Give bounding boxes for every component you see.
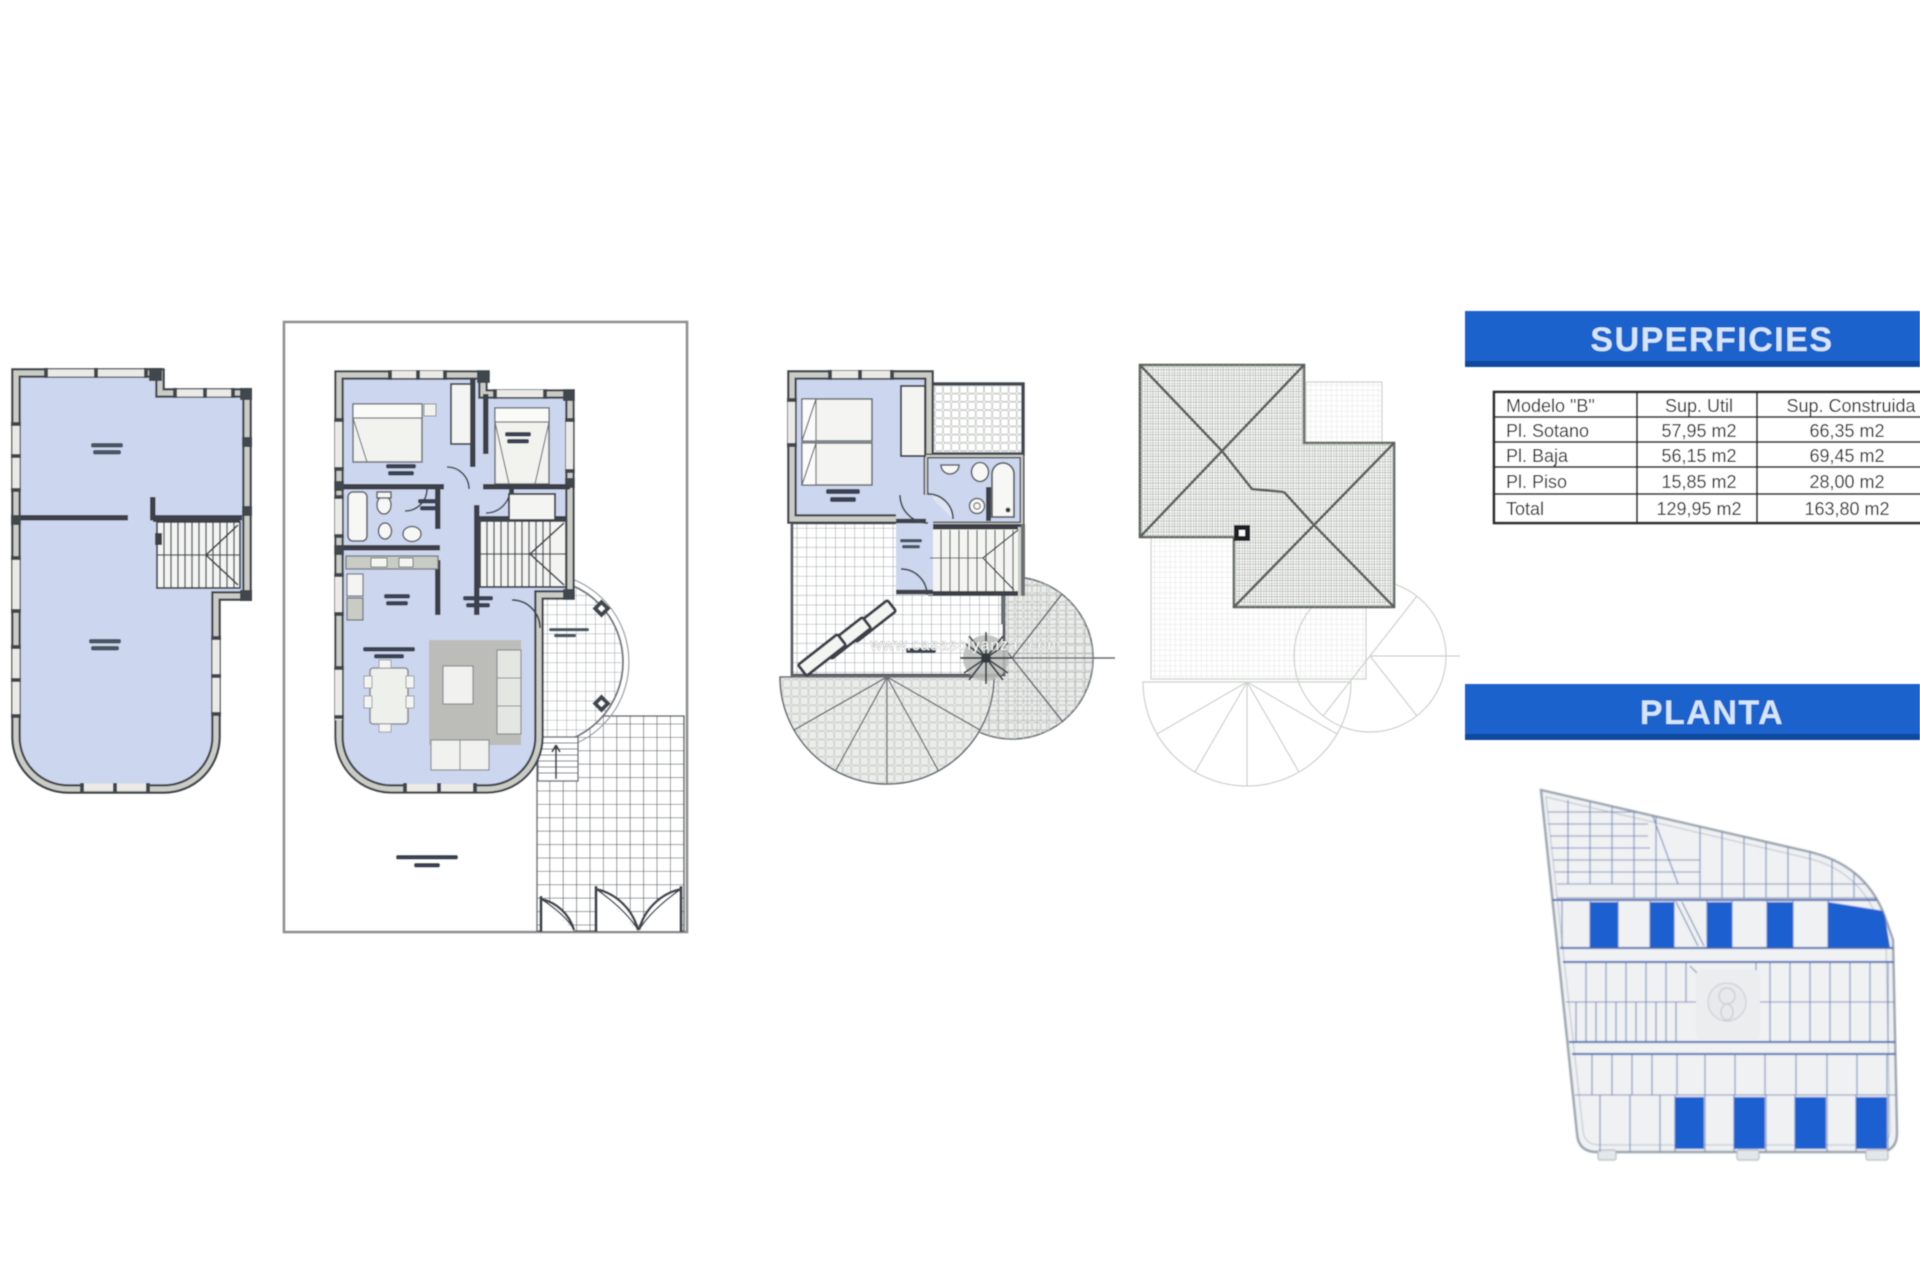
svg-text:Sup. Construida: Sup. Construida: [1786, 396, 1916, 416]
svg-text:Pl. Piso: Pl. Piso: [1506, 472, 1567, 492]
svg-text:15,85 m2: 15,85 m2: [1661, 472, 1736, 492]
svg-text:Modelo "B": Modelo "B": [1506, 396, 1595, 416]
svg-text:28,00 m2: 28,00 m2: [1809, 472, 1884, 492]
svg-text:PLANTA: PLANTA: [1640, 694, 1784, 732]
svg-text:129,95 m2: 129,95 m2: [1656, 499, 1741, 519]
svg-text:66,35 m2: 66,35 m2: [1809, 421, 1884, 441]
svg-text:www.casasolyanza .com: www.casasolyanza .com: [869, 637, 1061, 654]
svg-text:57,95 m2: 57,95 m2: [1661, 421, 1736, 441]
svg-text:Total: Total: [1506, 499, 1544, 519]
svg-text:SUPERFICIES: SUPERFICIES: [1590, 321, 1833, 359]
svg-text:56,15 m2: 56,15 m2: [1661, 446, 1736, 466]
svg-text:163,80 m2: 163,80 m2: [1804, 499, 1889, 519]
svg-text:Pl. Sotano: Pl. Sotano: [1506, 421, 1589, 441]
svg-text:Pl. Baja: Pl. Baja: [1506, 446, 1569, 466]
svg-text:Sup. Util: Sup. Util: [1665, 396, 1733, 416]
svg-text:69,45 m2: 69,45 m2: [1809, 446, 1884, 466]
